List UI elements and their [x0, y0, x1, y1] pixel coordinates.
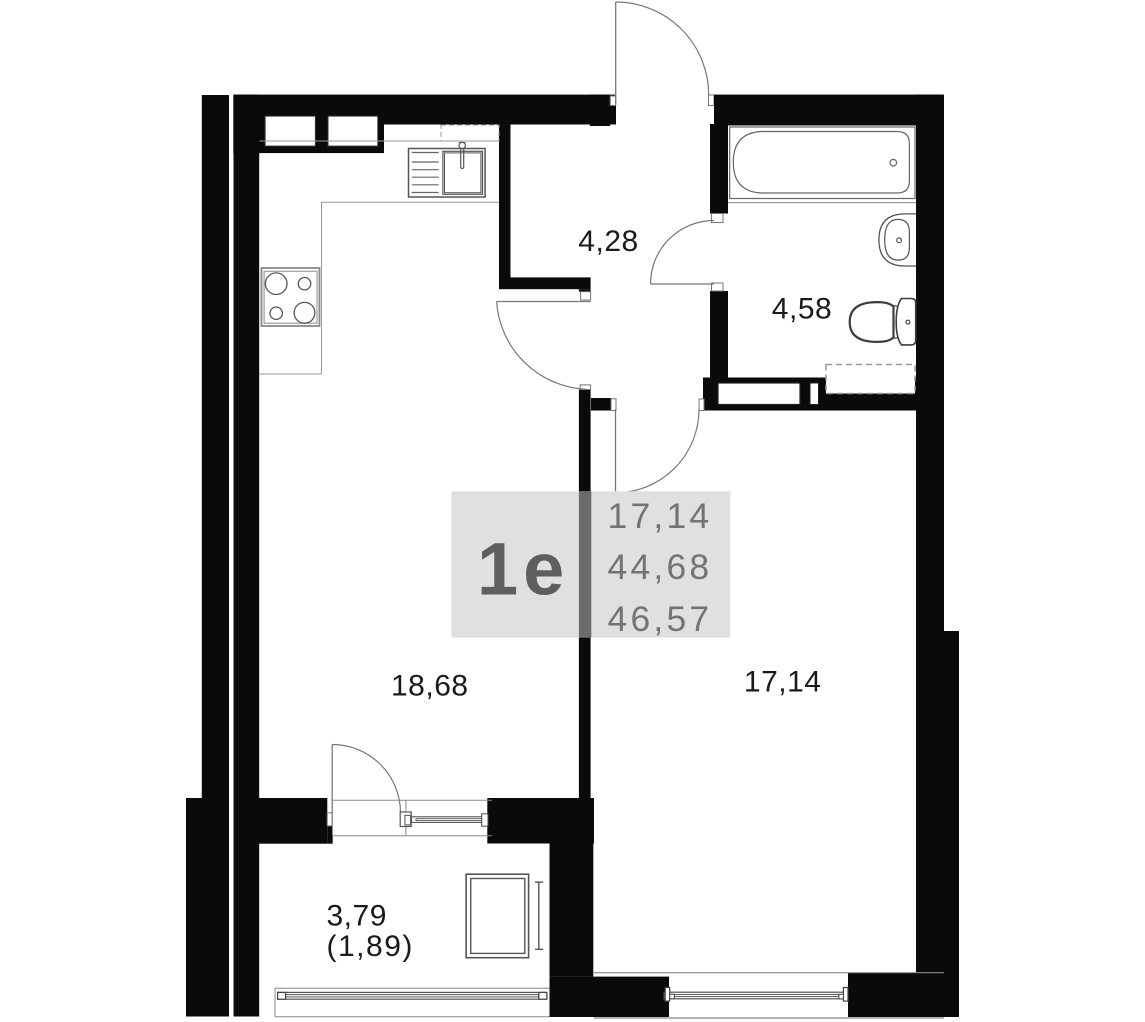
- svg-text:4,28: 4,28: [578, 225, 638, 258]
- svg-text:17,14: 17,14: [608, 496, 713, 536]
- svg-text:46,57: 46,57: [608, 599, 713, 639]
- svg-text:17,14: 17,14: [744, 666, 822, 699]
- svg-text:44,68: 44,68: [608, 547, 713, 587]
- svg-text:(1,89): (1,89): [327, 930, 414, 963]
- svg-text:1е: 1е: [477, 528, 569, 611]
- svg-text:18,68: 18,68: [391, 669, 469, 702]
- svg-text:4,58: 4,58: [772, 293, 832, 326]
- svg-text:3,79: 3,79: [327, 900, 387, 933]
